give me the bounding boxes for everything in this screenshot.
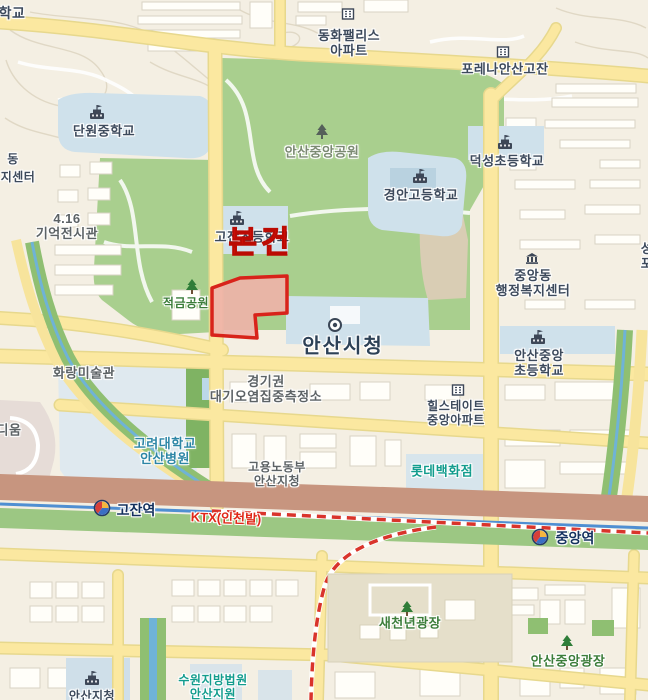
stream-south <box>140 618 166 700</box>
map-base-tiles <box>0 0 648 700</box>
map-canvas[interactable]: 학교 동화팰리스 아파트 포레나안산고잔 단원중학교 동 지센터 4.16 기억… <box>0 0 648 700</box>
saecheonnyeon-plaza-area <box>328 574 512 662</box>
